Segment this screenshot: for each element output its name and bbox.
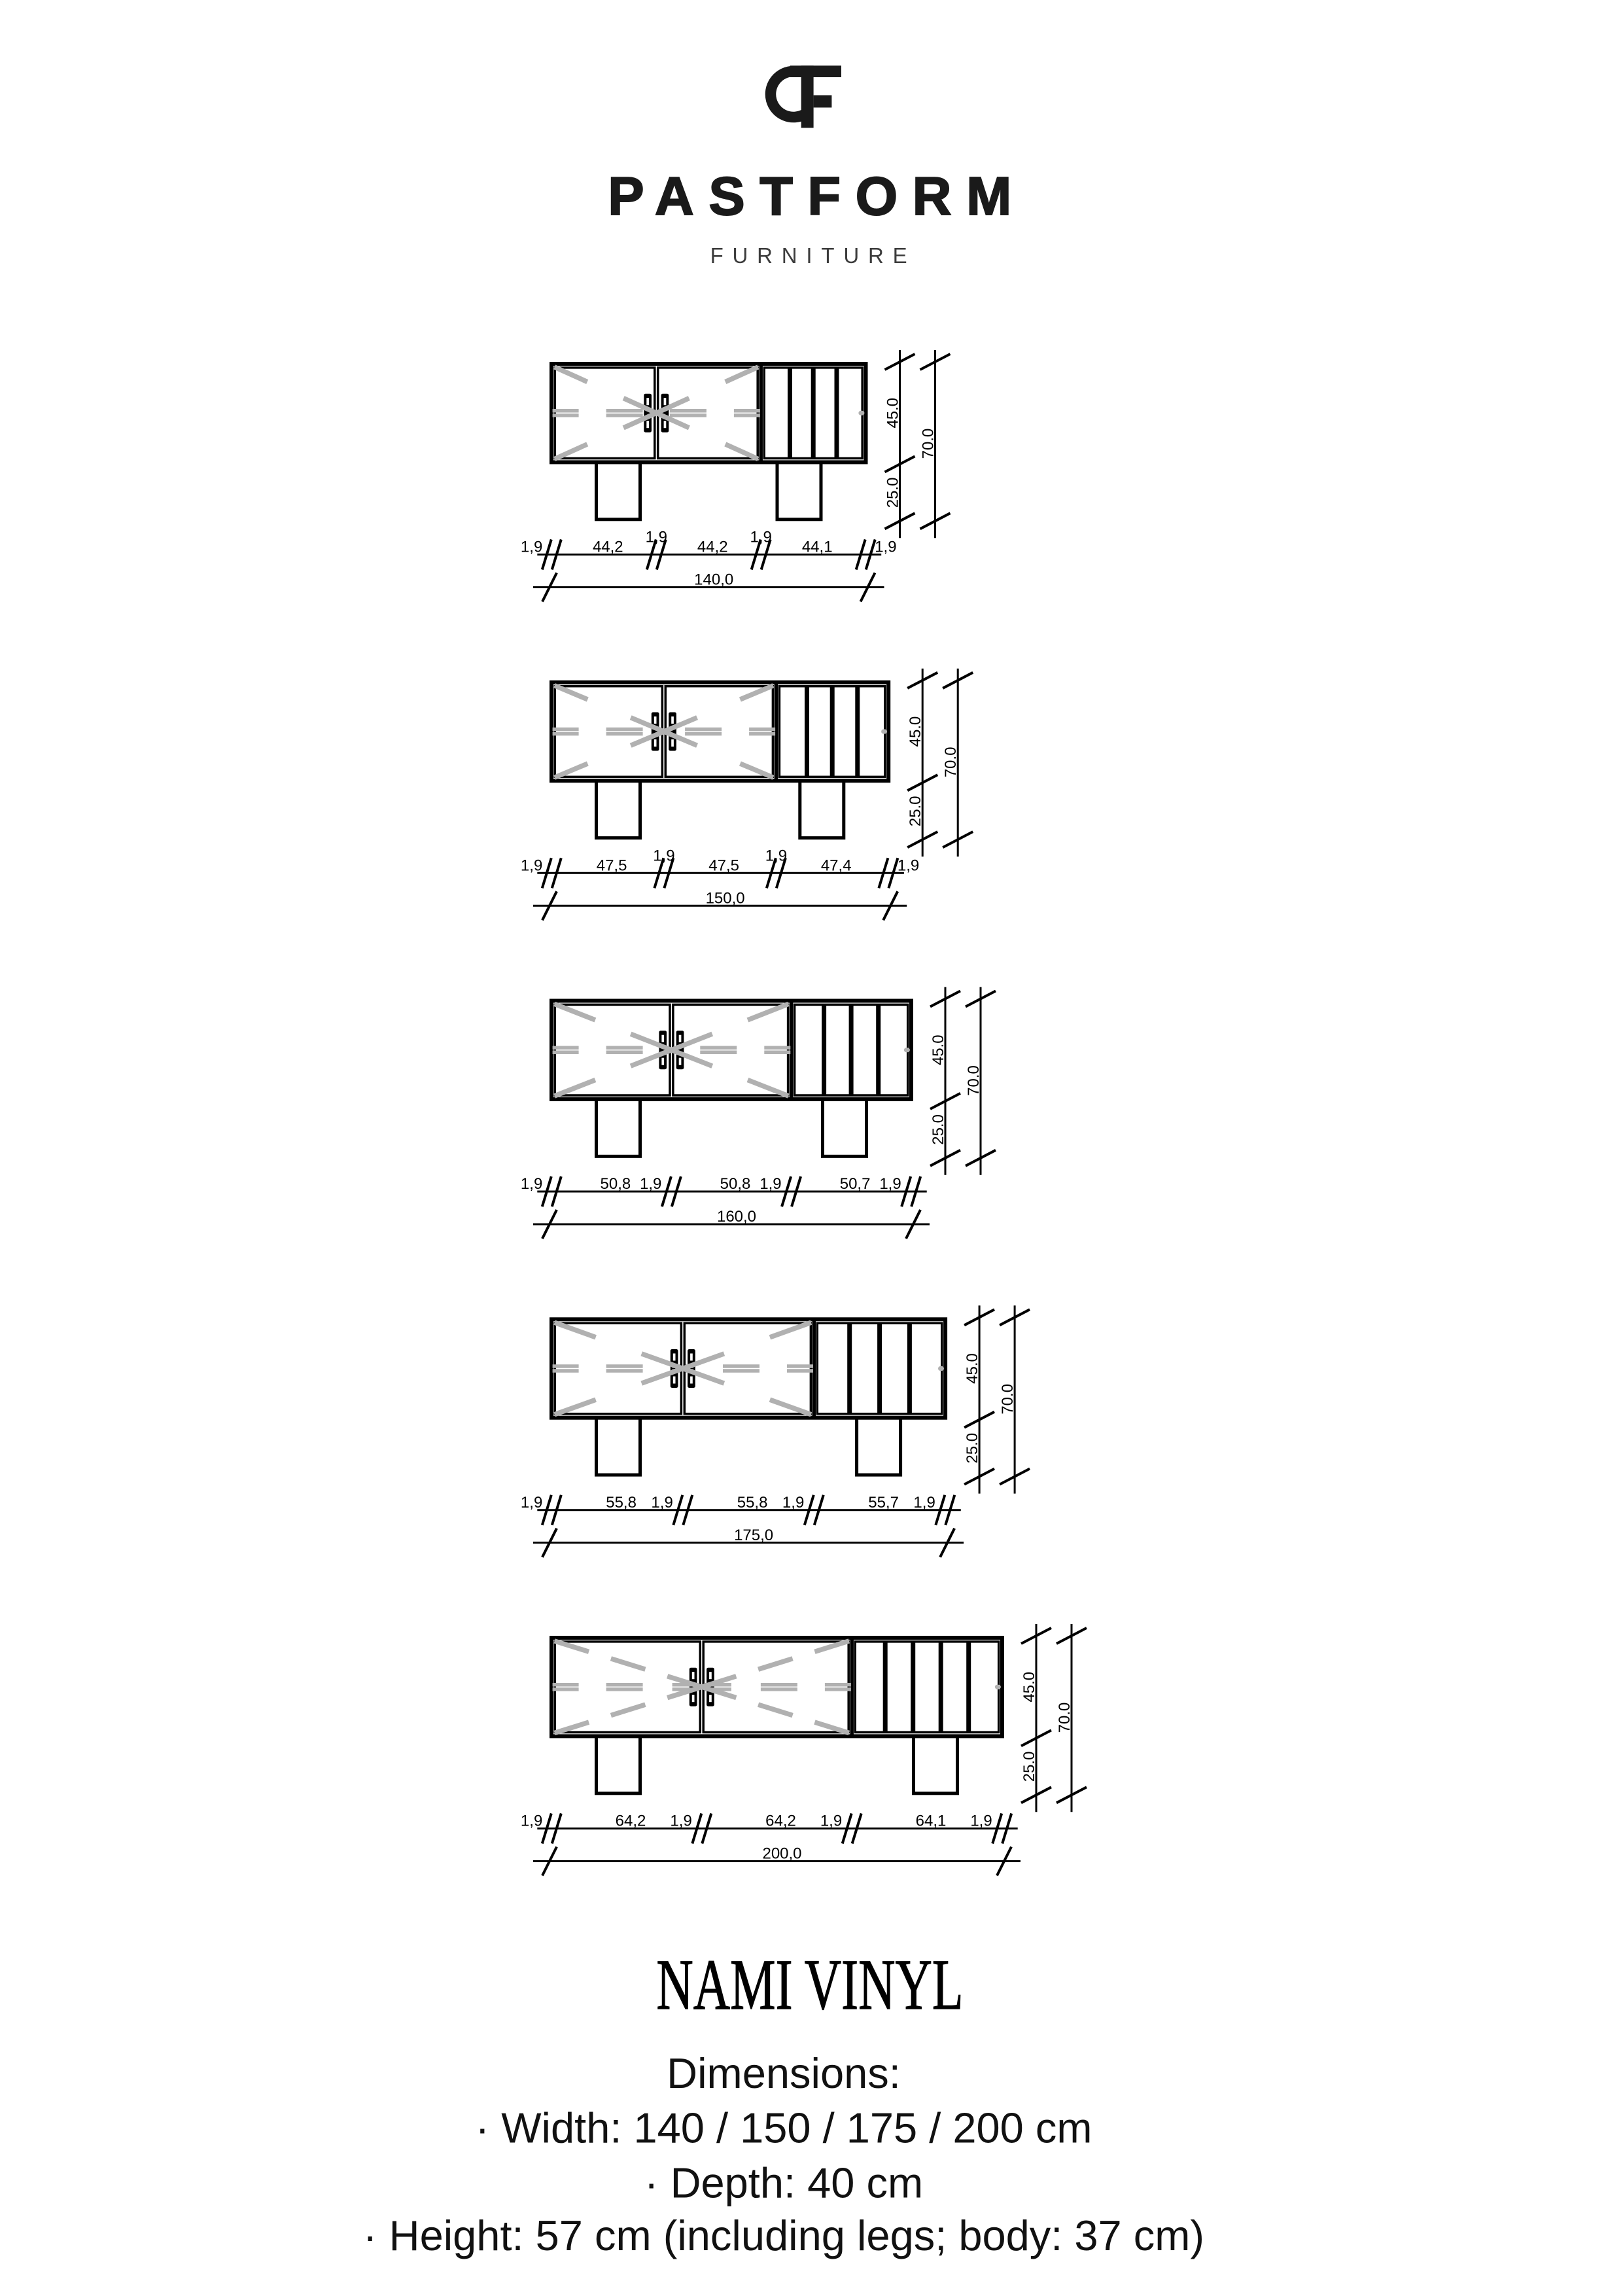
svg-text:50,7: 50,7 bbox=[840, 1175, 871, 1193]
svg-text:55,8: 55,8 bbox=[606, 1494, 637, 1511]
svg-text:64,2: 64,2 bbox=[616, 1812, 646, 1830]
svg-text:45.0: 45.0 bbox=[930, 1034, 947, 1065]
svg-text:70.0: 70.0 bbox=[1056, 1703, 1073, 1733]
svg-text:1,9: 1,9 bbox=[521, 1812, 542, 1830]
svg-text:70.0: 70.0 bbox=[965, 1065, 983, 1096]
svg-text:64,1: 64,1 bbox=[916, 1812, 947, 1830]
svg-text:· Depth: 40 cm: · Depth: 40 cm bbox=[644, 2159, 923, 2207]
svg-text:1,9: 1,9 bbox=[670, 1812, 691, 1830]
svg-text:1,9: 1,9 bbox=[750, 529, 772, 546]
svg-text:47,5: 47,5 bbox=[708, 857, 739, 874]
svg-text:47,4: 47,4 bbox=[821, 857, 852, 874]
svg-text:· Height: 57 cm (including leg: · Height: 57 cm (including legs; body: 3… bbox=[363, 2212, 1204, 2259]
svg-text:50,8: 50,8 bbox=[601, 1175, 631, 1193]
svg-text:1,9: 1,9 bbox=[765, 847, 787, 864]
svg-text:1,9: 1,9 bbox=[640, 1175, 661, 1193]
svg-text:45.0: 45.0 bbox=[884, 398, 902, 429]
svg-text:25.0: 25.0 bbox=[1021, 1752, 1038, 1782]
svg-text:150,0: 150,0 bbox=[706, 889, 745, 907]
svg-text:44,1: 44,1 bbox=[802, 539, 833, 556]
svg-text:45.0: 45.0 bbox=[964, 1353, 981, 1384]
svg-text:1,9: 1,9 bbox=[898, 857, 919, 874]
svg-text:25.0: 25.0 bbox=[930, 1114, 947, 1145]
svg-text:1,9: 1,9 bbox=[521, 539, 542, 556]
svg-text:50,8: 50,8 bbox=[720, 1175, 751, 1193]
svg-text:25.0: 25.0 bbox=[884, 478, 902, 508]
svg-text:70.0: 70.0 bbox=[920, 429, 937, 459]
svg-text:44,2: 44,2 bbox=[697, 539, 728, 556]
svg-text:1,9: 1,9 bbox=[521, 1175, 542, 1193]
svg-text:1,9: 1,9 bbox=[759, 1175, 781, 1193]
svg-text:1,9: 1,9 bbox=[521, 857, 542, 874]
svg-text:25.0: 25.0 bbox=[964, 1433, 981, 1464]
svg-text:Dimensions:: Dimensions: bbox=[667, 2049, 901, 2097]
svg-text:55,7: 55,7 bbox=[868, 1494, 899, 1511]
svg-text:45.0: 45.0 bbox=[907, 716, 924, 747]
svg-text:1,9: 1,9 bbox=[521, 1494, 542, 1511]
svg-text:1,9: 1,9 bbox=[653, 847, 674, 864]
svg-text:PASTFORM: PASTFORM bbox=[608, 166, 1026, 226]
svg-text:200,0: 200,0 bbox=[762, 1845, 801, 1863]
svg-text:70.0: 70.0 bbox=[999, 1384, 1017, 1415]
svg-text:47,5: 47,5 bbox=[597, 857, 627, 874]
svg-text:FURNITURE: FURNITURE bbox=[710, 243, 916, 268]
svg-text:1,9: 1,9 bbox=[875, 539, 896, 556]
svg-text:1,9: 1,9 bbox=[913, 1494, 935, 1511]
svg-text:140,0: 140,0 bbox=[694, 571, 733, 589]
svg-text:1,9: 1,9 bbox=[651, 1494, 672, 1511]
svg-text:1,9: 1,9 bbox=[646, 529, 667, 546]
svg-text:1,9: 1,9 bbox=[782, 1494, 804, 1511]
svg-text:45.0: 45.0 bbox=[1021, 1672, 1038, 1703]
svg-text:· Width: 140 / 150 / 175 / 200: · Width: 140 / 150 / 175 / 200 cm bbox=[475, 2104, 1092, 2152]
svg-text:1,9: 1,9 bbox=[970, 1812, 992, 1830]
svg-text:70.0: 70.0 bbox=[942, 747, 960, 777]
svg-text:NAMI VINYL: NAMI VINYL bbox=[656, 1945, 963, 2024]
svg-text:160,0: 160,0 bbox=[717, 1208, 756, 1226]
svg-text:175,0: 175,0 bbox=[734, 1527, 773, 1544]
svg-text:55,8: 55,8 bbox=[737, 1494, 768, 1511]
svg-text:1,9: 1,9 bbox=[879, 1175, 901, 1193]
svg-text:1,9: 1,9 bbox=[820, 1812, 842, 1830]
svg-text:64,2: 64,2 bbox=[765, 1812, 796, 1830]
svg-text:44,2: 44,2 bbox=[593, 539, 623, 556]
svg-text:25.0: 25.0 bbox=[907, 796, 924, 826]
